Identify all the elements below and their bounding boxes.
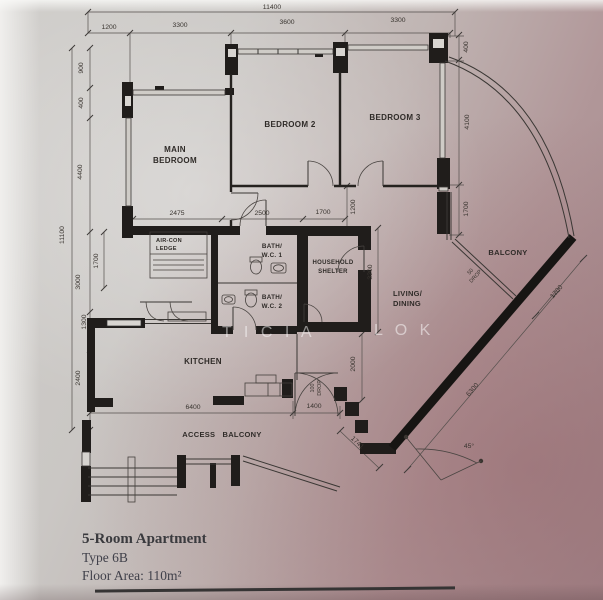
- room-access-balcony: ACCESS BALCONY: [182, 430, 261, 439]
- room-kitchen: KITCHEN: [184, 357, 222, 366]
- dim-angle-45: 45°: [464, 442, 475, 450]
- dim-left-overall: 11100: [59, 226, 66, 244]
- watermark-part1: T I C I A: [222, 324, 316, 341]
- doors: [140, 161, 383, 416]
- dim-left-1700: 1700: [93, 253, 100, 268]
- dim-mid-1200: 1200: [350, 199, 357, 214]
- dim-kitchen-6400: 6400: [185, 404, 200, 411]
- room-bath1-line2: W.C. 1: [262, 252, 283, 259]
- dim-right-4100: 4100: [464, 114, 471, 129]
- dim-left-400: 400: [78, 97, 85, 109]
- dimension-lines: [69, 9, 587, 473]
- dim-left-900: 900: [78, 62, 85, 74]
- dim-mid-2500: 2500: [254, 210, 269, 217]
- dim-left-3000: 3000: [75, 274, 82, 289]
- dim-left-1300: 1300: [81, 314, 88, 329]
- dim-entrance-drop-word: DROP: [317, 380, 323, 396]
- plan-type: Type 6B: [82, 550, 128, 565]
- room-living-line2: DINING: [393, 299, 421, 308]
- dim-diag-6300: 6300: [465, 382, 480, 398]
- room-main-bedroom-line1: MAIN: [164, 145, 186, 154]
- dim-top-3600: 3600: [279, 19, 294, 26]
- dim-left-2400: 2400: [75, 370, 82, 385]
- dim-left-4400: 4400: [77, 164, 84, 179]
- fixtures: [88, 232, 483, 502]
- dim-living-2000: 2000: [350, 356, 357, 371]
- dim-mid-1700: 1700: [315, 209, 330, 216]
- room-balcony: BALCONY: [488, 248, 527, 257]
- dim-top-overall: 11400: [263, 4, 282, 11]
- plan-floor-area: Floor Area: 110m²: [82, 568, 182, 583]
- walls: [81, 33, 573, 502]
- dim-diag-1700: 1700: [549, 284, 564, 300]
- dim-entrance-1400: 1400: [306, 403, 321, 410]
- floor-plan-drawing: 11400 1200 3300 3600 3300 11100 900 400 …: [0, 0, 603, 600]
- dim-top-1200: 1200: [101, 24, 116, 31]
- room-bath2-line1: BATH/: [262, 294, 282, 301]
- floor-plan-photo: 11400 1200 3300 3600 3300 11100 900 400 …: [0, 0, 603, 600]
- dim-top-3300b: 3300: [390, 17, 405, 24]
- dim-top-3300a: 3300: [172, 22, 187, 29]
- dim-right-400: 400: [463, 41, 470, 53]
- room-aircon-line2: LEDGE: [156, 246, 177, 252]
- photo-edge-bottom: [0, 584, 603, 600]
- room-main-bedroom-line2: BEDROOM: [153, 156, 197, 165]
- watermark-part2: L O K: [374, 322, 434, 339]
- room-shelter-line2: SHELTER: [318, 269, 348, 275]
- room-living-line1: LIVING/: [393, 289, 423, 298]
- room-bedroom-3: BEDROOM 3: [369, 113, 420, 122]
- dim-right-1700: 1700: [463, 201, 470, 216]
- room-shelter-line1: HOUSEHOLD: [312, 260, 353, 266]
- dim-entrance-drop-100: 100: [310, 384, 316, 393]
- plan-title: 5-Room Apartment: [82, 531, 207, 547]
- room-bedroom-2: BEDROOM 2: [264, 120, 315, 129]
- dim-mid-2475: 2475: [169, 210, 184, 217]
- room-bath2-line2: W.C. 2: [262, 303, 283, 310]
- room-bath1-line1: BATH/: [262, 243, 282, 250]
- room-aircon-line1: AIR-CON: [156, 238, 182, 244]
- dim-shelter-3200: 3200: [367, 264, 374, 279]
